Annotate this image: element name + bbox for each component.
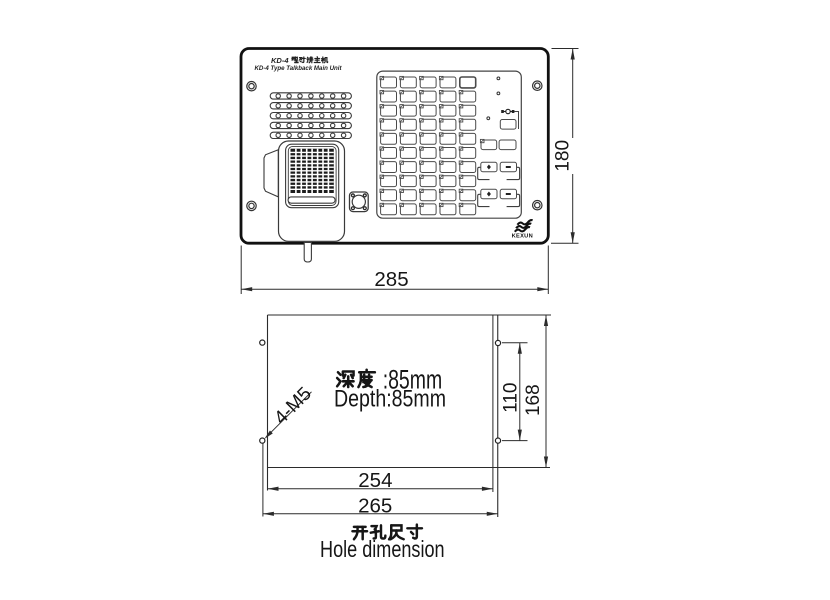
svg-text:KD-4 Type Talkback Main Unit: KD-4 Type Talkback Main Unit xyxy=(255,65,343,72)
svg-text:168: 168 xyxy=(523,384,544,416)
svg-text:265: 265 xyxy=(358,494,392,517)
svg-text:254: 254 xyxy=(358,469,392,492)
svg-text:180: 180 xyxy=(552,140,573,172)
svg-text:Hole dimension: Hole dimension xyxy=(320,536,445,562)
svg-text:KEXUN: KEXUN xyxy=(512,234,533,240)
svg-text:Depth:85mm: Depth:85mm xyxy=(334,385,446,412)
svg-text:110: 110 xyxy=(501,383,522,413)
svg-text:285: 285 xyxy=(374,268,408,291)
